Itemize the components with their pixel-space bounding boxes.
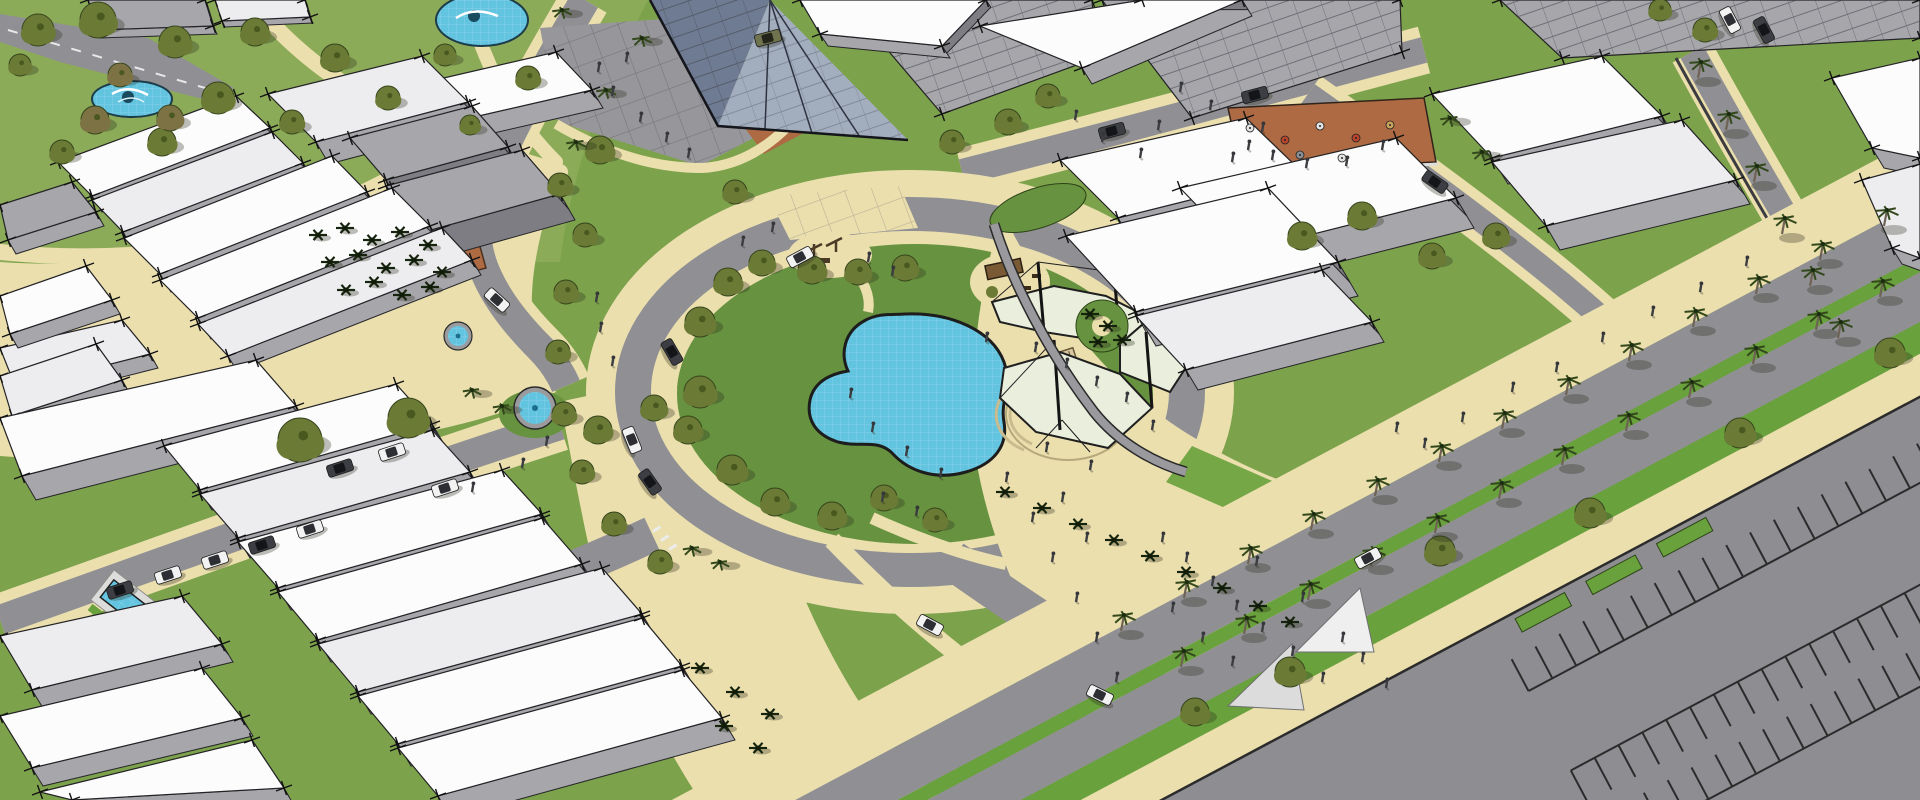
umbrella — [1352, 134, 1360, 142]
umbrella — [1281, 136, 1289, 144]
fountain-pond-2 — [436, 0, 528, 46]
umbrella — [1316, 122, 1324, 130]
umbrella — [1246, 124, 1254, 132]
umbrella — [1386, 121, 1394, 129]
masterplan-svg — [0, 0, 1920, 800]
small-fountain — [444, 322, 472, 350]
umbrella — [1338, 154, 1346, 162]
umbrella — [1296, 151, 1304, 159]
masterplan-render — [0, 0, 1920, 800]
